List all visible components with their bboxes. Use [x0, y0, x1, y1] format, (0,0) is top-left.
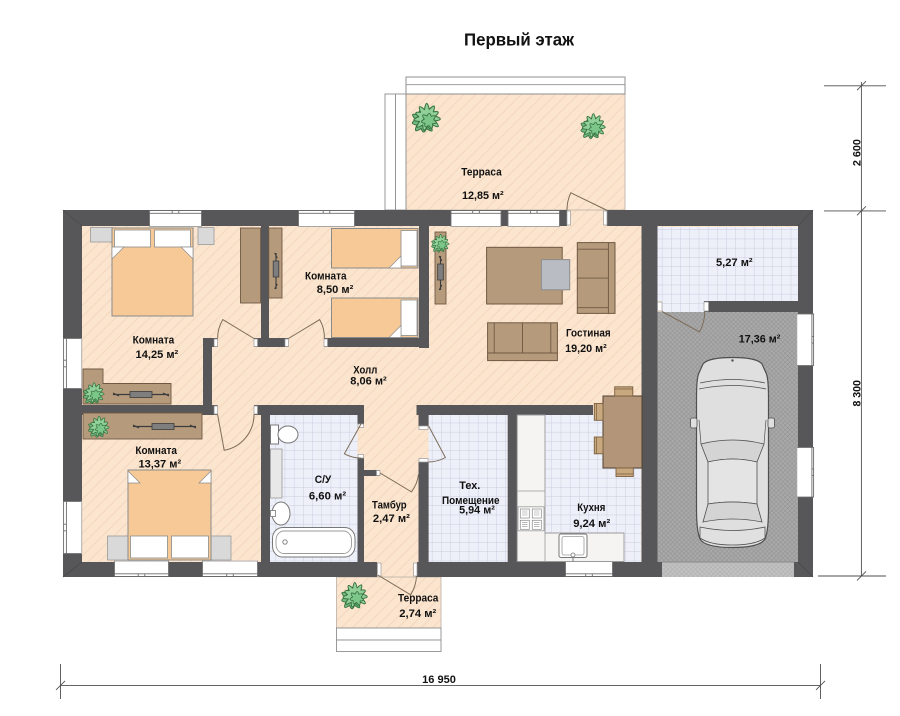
svg-text:9,24 м²: 9,24 м²	[573, 518, 610, 530]
svg-text:17,36 м²: 17,36 м²	[739, 334, 781, 346]
svg-text:12,85 м²: 12,85 м²	[462, 190, 504, 202]
svg-text:14,25 м²: 14,25 м²	[136, 349, 179, 361]
svg-text:Комната: Комната	[135, 445, 177, 457]
svg-text:С/У: С/У	[315, 474, 332, 486]
svg-text:Комната: Комната	[305, 271, 347, 283]
svg-text:19,20 м²: 19,20 м²	[565, 343, 607, 355]
svg-text:Терраса: Терраса	[398, 593, 439, 605]
svg-text:2 600: 2 600	[852, 139, 864, 166]
svg-text:Тамбур: Тамбур	[372, 500, 407, 512]
svg-text:Первый этаж: Первый этаж	[464, 30, 575, 50]
svg-text:5,27 м²: 5,27 м²	[716, 257, 753, 269]
svg-text:Гостиная: Гостиная	[566, 327, 611, 339]
svg-text:8,06 м²: 8,06 м²	[350, 375, 387, 387]
svg-text:13,37 м²: 13,37 м²	[138, 459, 181, 471]
svg-text:8 300: 8 300	[852, 380, 864, 407]
svg-text:Терраса: Терраса	[461, 167, 502, 179]
svg-text:2,74 м²: 2,74 м²	[399, 608, 436, 620]
svg-text:5,94 м²: 5,94 м²	[459, 504, 495, 516]
svg-text:6,60 м²: 6,60 м²	[309, 490, 346, 502]
svg-text:Кухня: Кухня	[577, 502, 605, 514]
svg-text:2,47 м²: 2,47 м²	[373, 513, 410, 525]
svg-text:16 950: 16 950	[422, 674, 456, 686]
svg-text:8,50 м²: 8,50 м²	[317, 284, 354, 296]
svg-text:Комната: Комната	[133, 335, 175, 347]
svg-text:Тех.: Тех.	[459, 480, 480, 492]
